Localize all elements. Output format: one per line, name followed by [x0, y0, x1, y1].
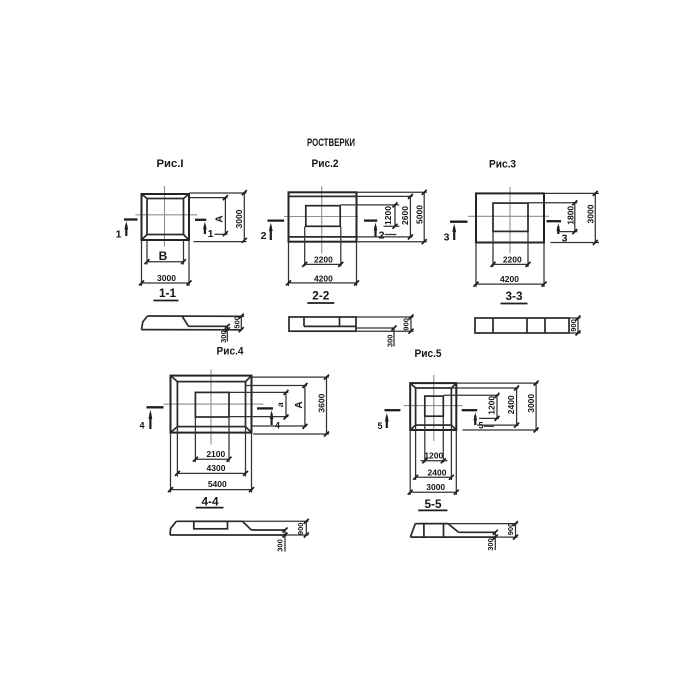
svg-text:2200: 2200	[314, 254, 333, 264]
svg-text:900: 900	[402, 318, 411, 331]
svg-text:2600: 2600	[400, 206, 410, 225]
svg-text:5: 5	[377, 421, 382, 431]
svg-text:5400: 5400	[208, 479, 227, 489]
svg-text:a: a	[275, 402, 285, 407]
svg-text:300: 300	[219, 330, 228, 343]
svg-text:1800: 1800	[566, 206, 576, 225]
svg-text:2400: 2400	[428, 468, 447, 478]
svg-text:Рис.4: Рис.4	[217, 346, 245, 358]
svg-text:300: 300	[486, 538, 495, 551]
svg-text:3000: 3000	[585, 204, 595, 223]
svg-text:4-4: 4-4	[201, 495, 218, 509]
svg-text:2400: 2400	[506, 395, 516, 414]
svg-text:РОСТВЕРКИ: РОСТВЕРКИ	[307, 137, 355, 149]
svg-text:Рис.3: Рис.3	[489, 159, 516, 171]
svg-text:2: 2	[379, 230, 385, 242]
svg-text:4200: 4200	[314, 274, 333, 284]
svg-text:1-1: 1-1	[159, 286, 176, 300]
svg-text:3000: 3000	[234, 209, 244, 228]
svg-text:3000: 3000	[157, 273, 176, 283]
svg-text:900: 900	[569, 319, 578, 332]
svg-text:300: 300	[386, 335, 395, 348]
svg-text:А: А	[215, 215, 226, 222]
svg-text:4200: 4200	[500, 274, 519, 284]
svg-text:300: 300	[276, 539, 285, 552]
svg-text:Рис.5: Рис.5	[415, 348, 442, 360]
svg-text:2-2: 2-2	[312, 289, 329, 303]
svg-text:3000: 3000	[426, 482, 445, 492]
svg-text:3-3: 3-3	[505, 289, 522, 303]
svg-text:4: 4	[139, 421, 144, 431]
svg-text:2200: 2200	[503, 254, 522, 264]
svg-text:1: 1	[116, 229, 122, 241]
svg-text:В: В	[159, 249, 168, 263]
svg-text:5000: 5000	[414, 205, 424, 224]
svg-text:900: 900	[296, 523, 305, 536]
svg-text:Рис.I: Рис.I	[157, 158, 184, 170]
svg-text:5-5: 5-5	[424, 497, 441, 511]
svg-text:3000: 3000	[526, 394, 536, 413]
svg-text:4300: 4300	[207, 463, 226, 473]
svg-text:1200: 1200	[424, 450, 443, 460]
svg-text:2100: 2100	[206, 449, 225, 459]
svg-text:4: 4	[275, 420, 280, 430]
svg-text:1200: 1200	[383, 206, 393, 225]
svg-text:А: А	[294, 401, 305, 408]
svg-text:900: 900	[506, 523, 515, 536]
svg-text:3600: 3600	[317, 393, 327, 412]
svg-text:1: 1	[208, 228, 214, 240]
svg-text:1200: 1200	[487, 396, 497, 415]
svg-text:2: 2	[261, 230, 267, 242]
svg-text:Рис.2: Рис.2	[312, 158, 339, 170]
svg-text:3: 3	[444, 231, 450, 243]
svg-text:500: 500	[232, 316, 241, 329]
